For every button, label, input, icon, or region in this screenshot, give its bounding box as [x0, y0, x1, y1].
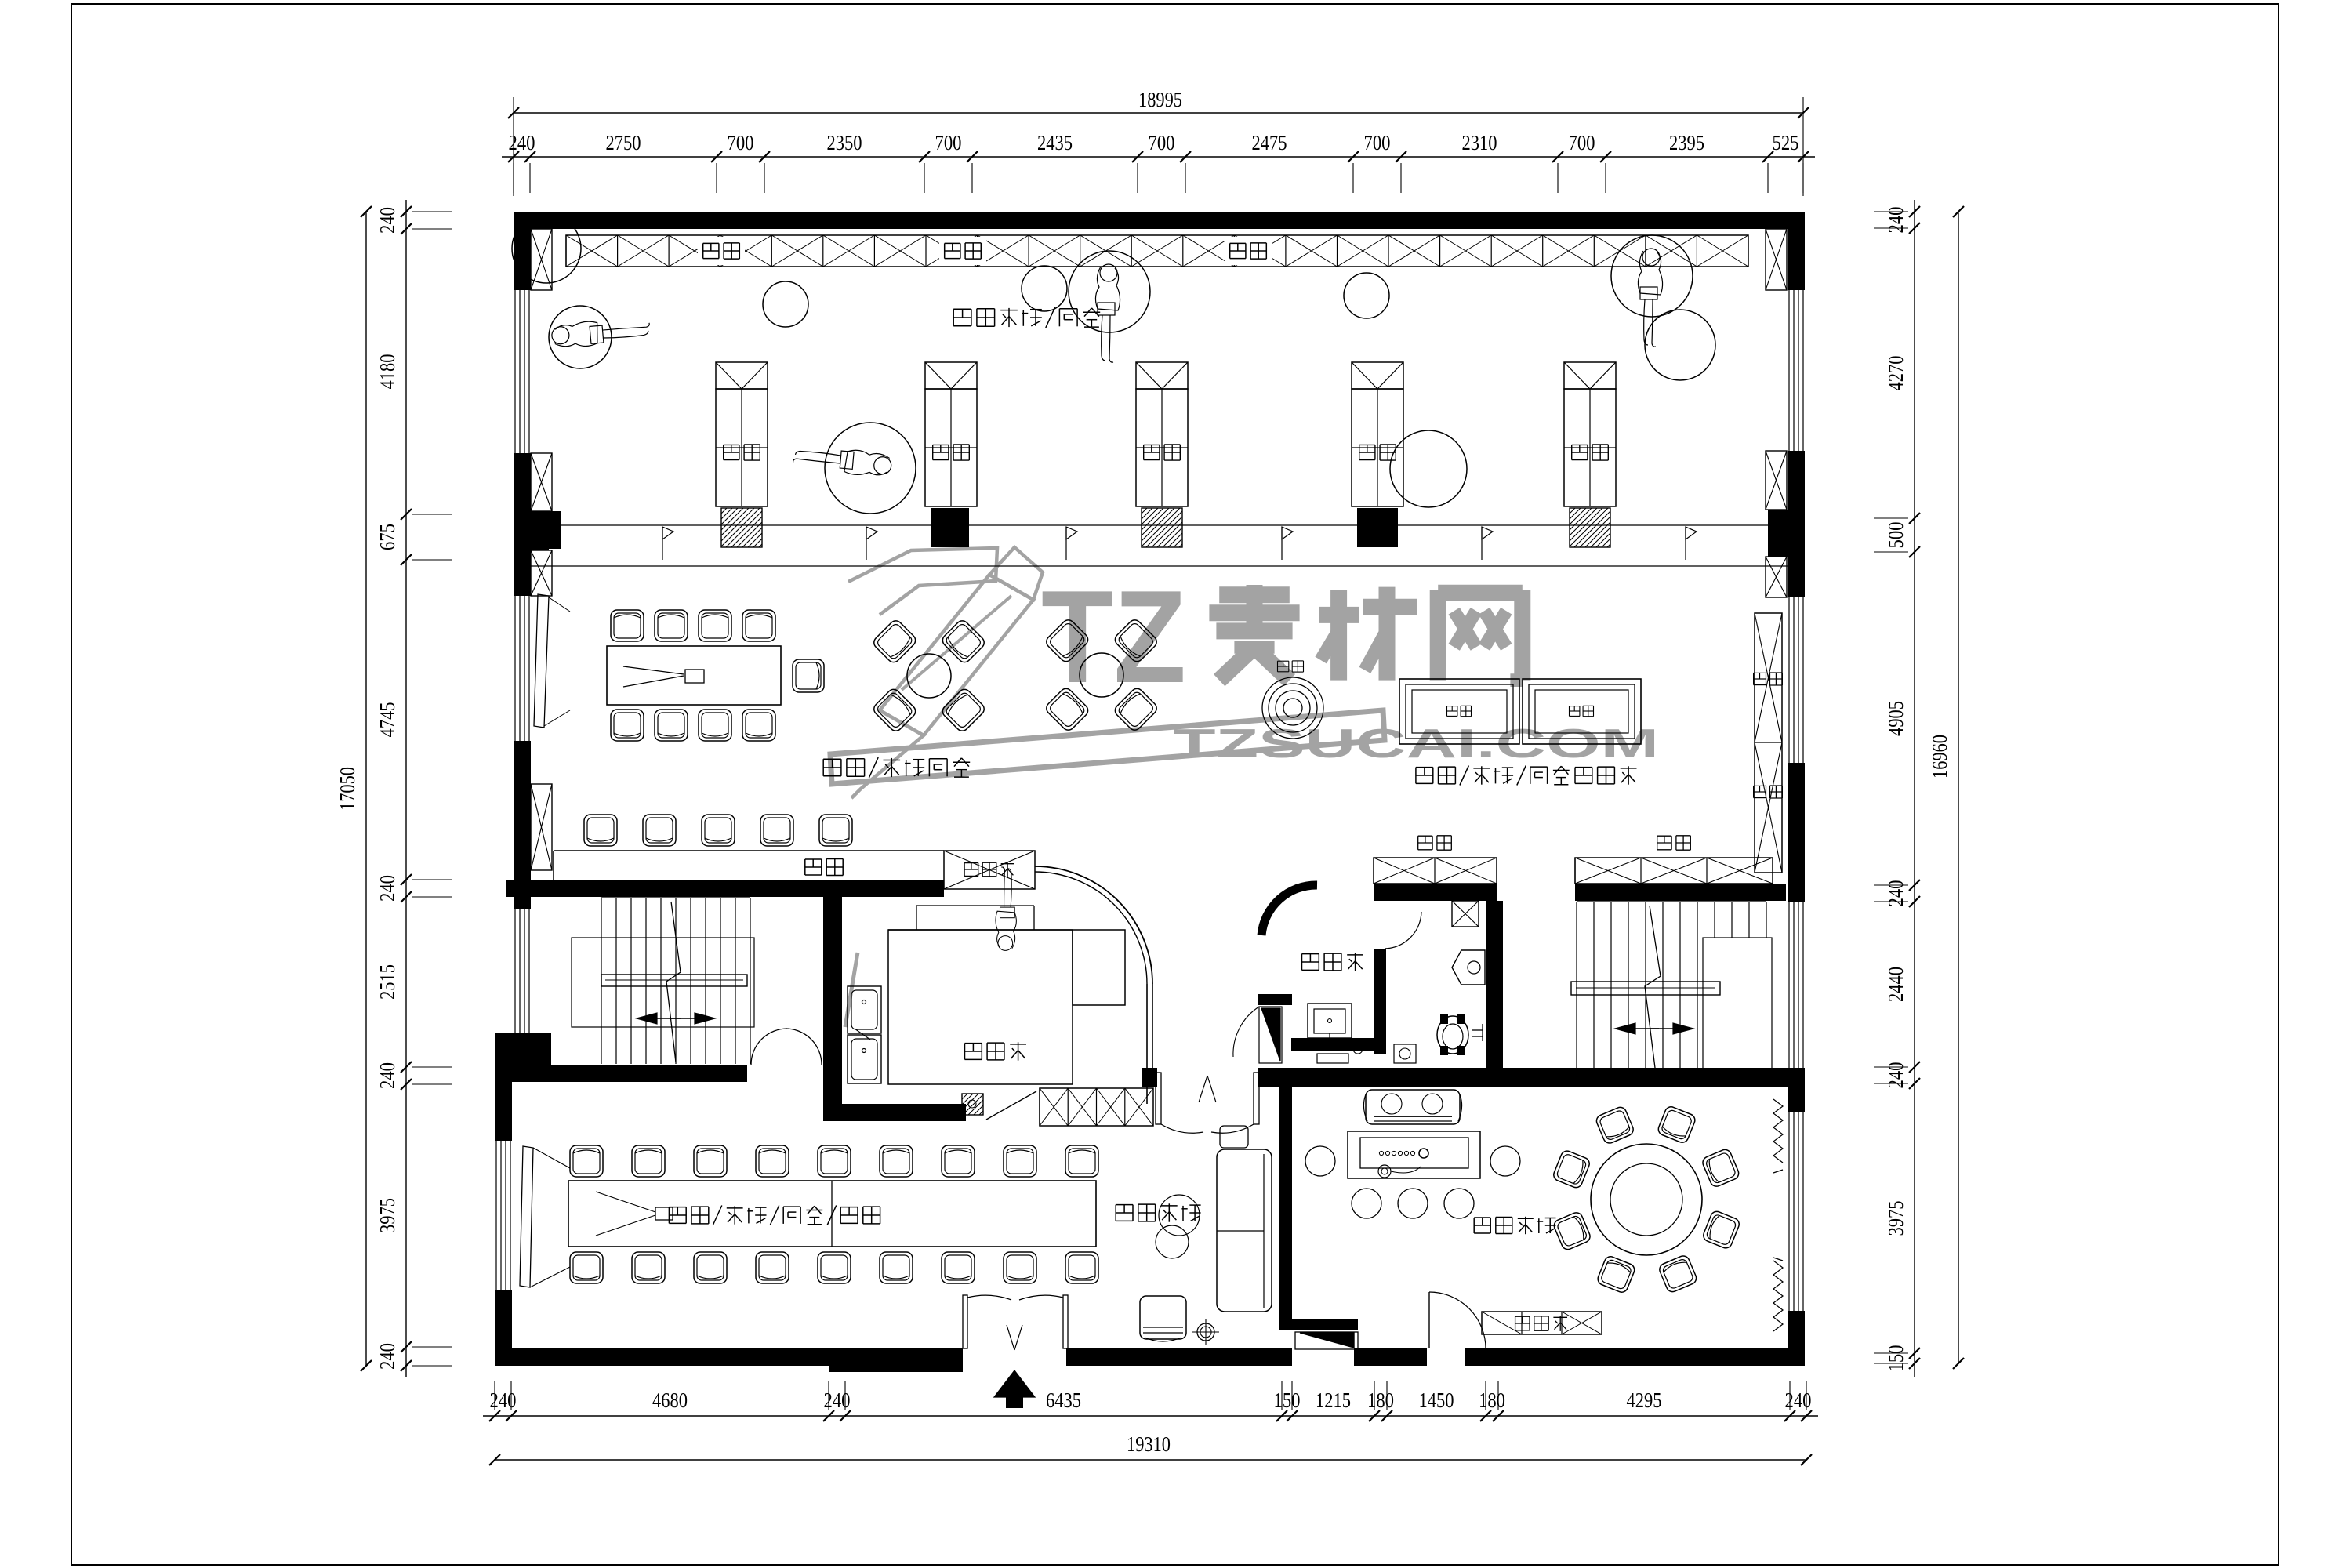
svg-text:240: 240	[376, 1343, 399, 1370]
svg-text:4295: 4295	[1627, 1388, 1662, 1412]
svg-text:240: 240	[824, 1388, 851, 1412]
svg-text:17050: 17050	[336, 767, 359, 811]
svg-text:2435: 2435	[1037, 131, 1073, 154]
svg-text:2310: 2310	[1462, 131, 1497, 154]
svg-text:525: 525	[1773, 131, 1799, 154]
svg-text:3975: 3975	[376, 1198, 399, 1233]
svg-text:700: 700	[1569, 131, 1595, 154]
svg-text:4905: 4905	[1884, 701, 1907, 736]
svg-text:TZ: TZ	[1041, 563, 1186, 710]
svg-text:16960: 16960	[1928, 735, 1951, 779]
svg-text:2515: 2515	[376, 964, 399, 1000]
svg-text:150: 150	[1274, 1388, 1301, 1412]
svg-text:2750: 2750	[606, 131, 641, 154]
svg-text:675: 675	[376, 524, 399, 550]
svg-text:19310: 19310	[1127, 1432, 1171, 1456]
svg-text:240: 240	[1884, 880, 1907, 907]
svg-text:240: 240	[1884, 1062, 1907, 1089]
svg-text:2350: 2350	[827, 131, 862, 154]
svg-text:150: 150	[1884, 1345, 1907, 1372]
svg-text:240: 240	[1884, 207, 1907, 234]
svg-text:4680: 4680	[652, 1388, 688, 1412]
svg-text:2440: 2440	[1884, 967, 1907, 1002]
svg-text:2395: 2395	[1669, 131, 1704, 154]
svg-text:500: 500	[1884, 522, 1907, 549]
svg-text:1450: 1450	[1419, 1388, 1454, 1412]
svg-text:1215: 1215	[1316, 1388, 1351, 1412]
svg-text:240: 240	[376, 207, 399, 234]
svg-text:240: 240	[376, 1062, 399, 1089]
svg-text:180: 180	[1367, 1388, 1394, 1412]
svg-text:700: 700	[1364, 131, 1391, 154]
svg-text:4270: 4270	[1884, 356, 1907, 391]
svg-text:4180: 4180	[376, 354, 399, 390]
svg-text:700: 700	[935, 131, 962, 154]
svg-text:180: 180	[1479, 1388, 1505, 1412]
svg-text:240: 240	[1785, 1388, 1812, 1412]
svg-text:700: 700	[1149, 131, 1175, 154]
svg-text:18995: 18995	[1138, 88, 1182, 111]
svg-text:3975: 3975	[1884, 1201, 1907, 1236]
svg-text:240: 240	[376, 875, 399, 902]
svg-text:700: 700	[728, 131, 754, 154]
svg-text:6435: 6435	[1046, 1388, 1081, 1412]
svg-text:2475: 2475	[1252, 131, 1287, 154]
svg-text:240: 240	[490, 1388, 517, 1412]
svg-text:4745: 4745	[376, 702, 399, 738]
svg-text:240: 240	[509, 131, 535, 154]
